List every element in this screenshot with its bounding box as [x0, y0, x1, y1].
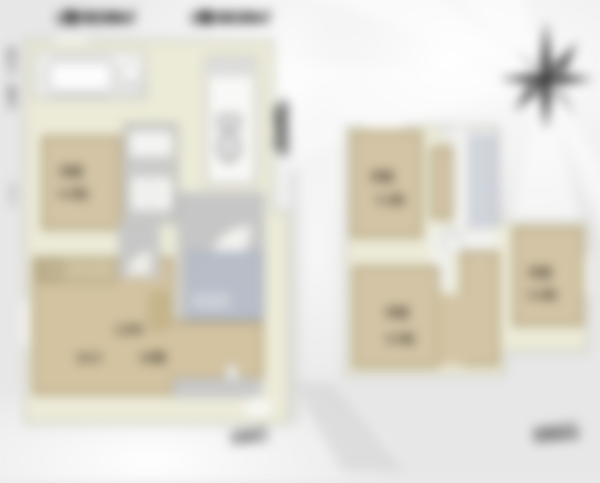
svg-text:洋室: 洋室	[385, 305, 409, 320]
svg-text:16帖: 16帖	[139, 350, 166, 365]
svg-text:1,820: 1,820	[7, 84, 18, 109]
svg-text:洋室: 洋室	[528, 265, 552, 280]
svg-text:3,640: 3,640	[8, 182, 19, 207]
svg-text:6.0帖: 6.0帖	[528, 287, 557, 302]
svg-text:洋室: 洋室	[59, 164, 83, 179]
svg-text:1階 52.99㎡: 1階 52.99㎡	[55, 9, 135, 27]
svg-text:8.0帖: 8.0帖	[386, 331, 415, 346]
svg-text:（3,640）: （3,640）	[271, 99, 286, 158]
svg-text:玄関口: 玄関口	[233, 430, 266, 444]
svg-text:洋室: 洋室	[370, 169, 394, 184]
svg-text:LDK: LDK	[116, 321, 145, 337]
svg-text:16.0: 16.0	[76, 350, 101, 365]
svg-text:5.2帖: 5.2帖	[376, 192, 405, 207]
svg-text:6.0帖: 6.0帖	[59, 186, 88, 201]
svg-text:2階 42.23㎡: 2階 42.23㎡	[190, 9, 270, 27]
svg-text:お問合せ: お問合せ	[532, 427, 580, 442]
svg-text:2,730: 2,730	[7, 47, 18, 72]
